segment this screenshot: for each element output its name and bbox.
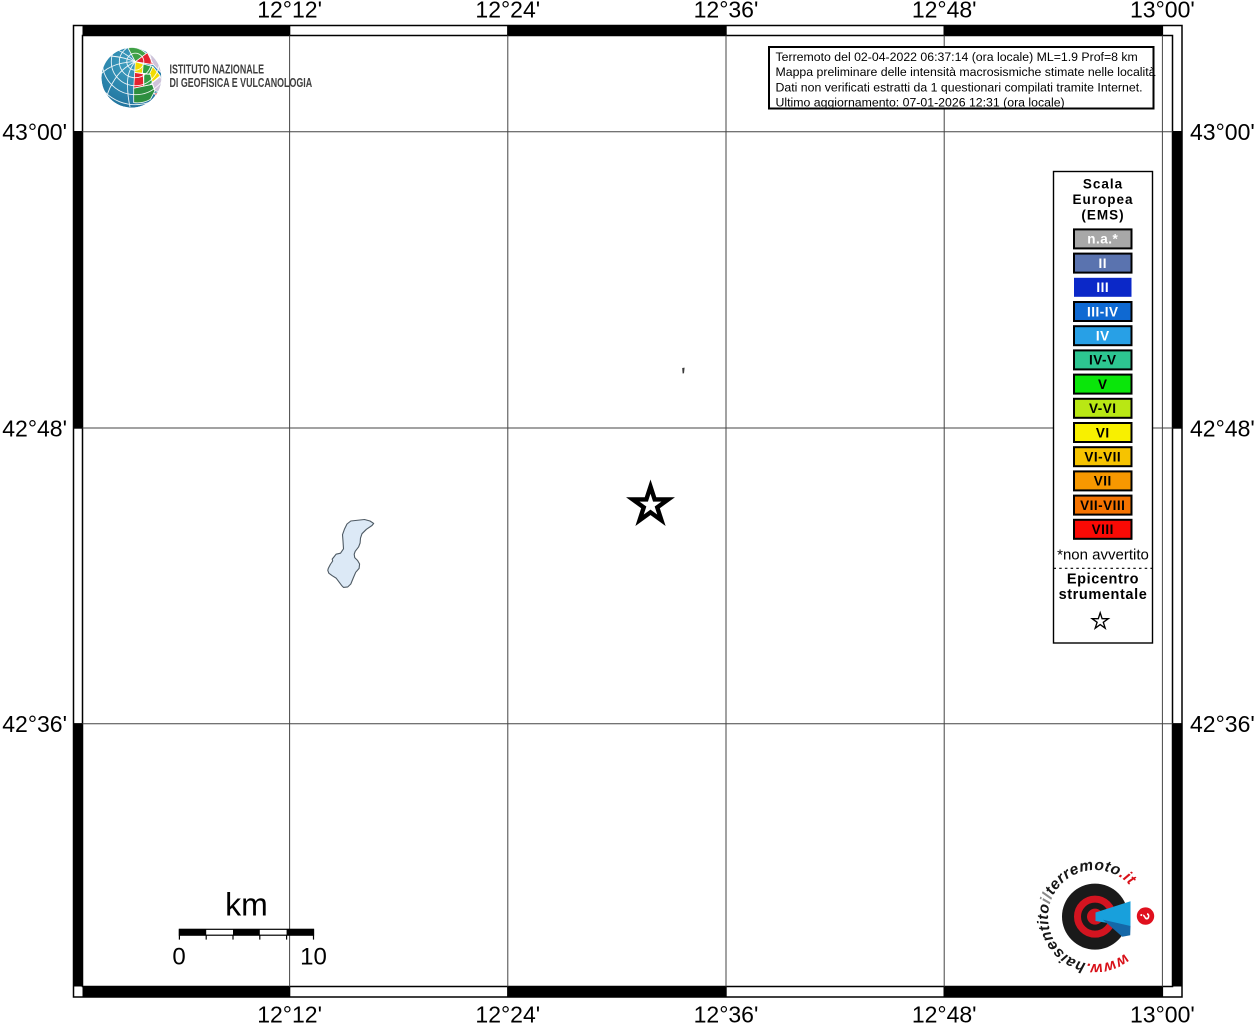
svg-text:42°36': 42°36' (1190, 711, 1255, 737)
svg-text:42°48': 42°48' (1190, 415, 1255, 441)
svg-text:km: km (225, 887, 268, 923)
svg-text:12°24': 12°24' (475, 0, 540, 23)
svg-text:V-VI: V-VI (1089, 401, 1117, 416)
svg-text:Dati non verificati estratti d: Dati non verificati estratti da 1 questi… (776, 80, 1143, 94)
svg-text:Mappa preliminare delle intens: Mappa preliminare delle intensità macros… (776, 65, 1156, 79)
svg-text:12°36': 12°36' (694, 0, 759, 23)
svg-text:VII-VIII: VII-VIII (1080, 498, 1125, 513)
svg-text:0: 0 (172, 944, 185, 971)
svg-text:V: V (1098, 377, 1108, 392)
svg-text:VI-VII: VI-VII (1084, 450, 1121, 465)
svg-text:IV: IV (1096, 329, 1110, 344)
svg-text:strumentale: strumentale (1059, 587, 1148, 603)
svg-text:42°48': 42°48' (2, 415, 67, 441)
svg-text:Europea: Europea (1072, 192, 1133, 207)
svg-text:12°48': 12°48' (912, 1002, 977, 1024)
svg-text:12°12': 12°12' (257, 0, 322, 23)
svg-text:ISTITUTO NAZIONALE: ISTITUTO NAZIONALE (170, 63, 264, 77)
svg-text:12°24': 12°24' (475, 1002, 540, 1024)
svg-text:42°36': 42°36' (2, 711, 67, 737)
svg-text:*non avvertito: *non avvertito (1057, 547, 1149, 564)
svg-text:Scala: Scala (1083, 176, 1123, 191)
svg-text:13°00': 13°00' (1130, 1002, 1195, 1024)
svg-text:Terremoto del 02-04-2022 06:37: Terremoto del 02-04-2022 06:37:14 (ora l… (776, 50, 1138, 64)
svg-text:12°48': 12°48' (912, 0, 977, 23)
svg-text:(EMS): (EMS) (1081, 207, 1124, 222)
svg-text:43°00': 43°00' (1190, 119, 1255, 145)
svg-text:Ultimo aggiornamento: 07-01-20: Ultimo aggiornamento: 07-01-2026 12:31 (… (776, 95, 1065, 109)
svg-text:Epicentro: Epicentro (1067, 572, 1139, 588)
svg-text:III-IV: III-IV (1087, 304, 1119, 319)
svg-text:VIII: VIII (1092, 522, 1114, 537)
svg-text:12°36': 12°36' (694, 1002, 759, 1024)
svg-text:n.a.*: n.a.* (1087, 232, 1118, 247)
svg-text:13°00': 13°00' (1130, 0, 1195, 23)
svg-text:DI GEOFISICA E VULCANOLOGIA: DI GEOFISICA E VULCANOLOGIA (170, 77, 313, 91)
svg-text:12°12': 12°12' (257, 1002, 322, 1024)
svg-text:VII: VII (1094, 474, 1112, 489)
svg-text:IV-V: IV-V (1089, 353, 1117, 368)
svg-text:VI: VI (1096, 425, 1110, 440)
svg-text:III: III (1096, 280, 1109, 295)
svg-text:10: 10 (300, 944, 327, 971)
svg-text:II: II (1098, 256, 1107, 271)
svg-text:43°00': 43°00' (2, 119, 67, 145)
